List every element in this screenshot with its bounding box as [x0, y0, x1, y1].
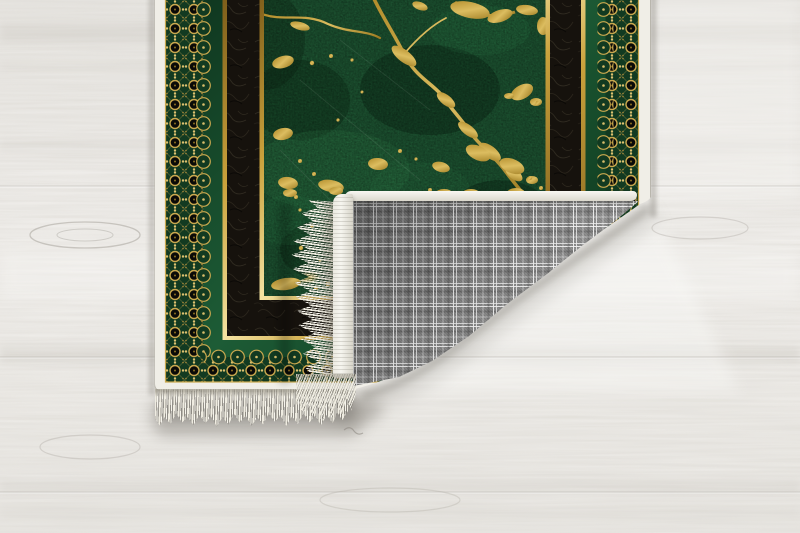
fringe-shadow-on-rug [279, 203, 290, 383]
rug-product-photo [0, 0, 800, 533]
lace-scallops-left [196, 0, 212, 357]
floor-and-rug-graphic [0, 0, 800, 533]
marble-texture [225, 0, 560, 296]
